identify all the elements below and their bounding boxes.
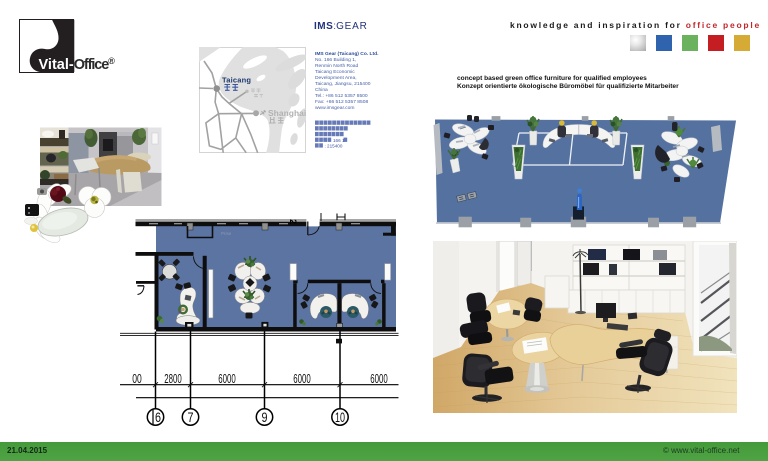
svg-text:Shanghai: Shanghai [268, 108, 306, 118]
svg-text:6: 6 [155, 409, 161, 425]
svg-text:00: 00 [132, 371, 142, 386]
svg-text:6000: 6000 [293, 371, 311, 386]
svg-text:6000: 6000 [218, 371, 236, 386]
svg-text:9: 9 [262, 409, 268, 425]
svg-text:: 215400: : 215400 [325, 144, 343, 149]
svg-text:6000: 6000 [370, 371, 388, 386]
svg-text:Prise: Prise [221, 231, 232, 236]
svg-text:2: 2 [288, 219, 298, 224]
svg-text:Taicang: Taicang [222, 76, 251, 85]
svg-text:10: 10 [335, 409, 345, 425]
svg-text:166 1: 166 1 [333, 138, 345, 143]
svg-text:7: 7 [188, 409, 194, 425]
svg-text:2800: 2800 [164, 371, 182, 386]
